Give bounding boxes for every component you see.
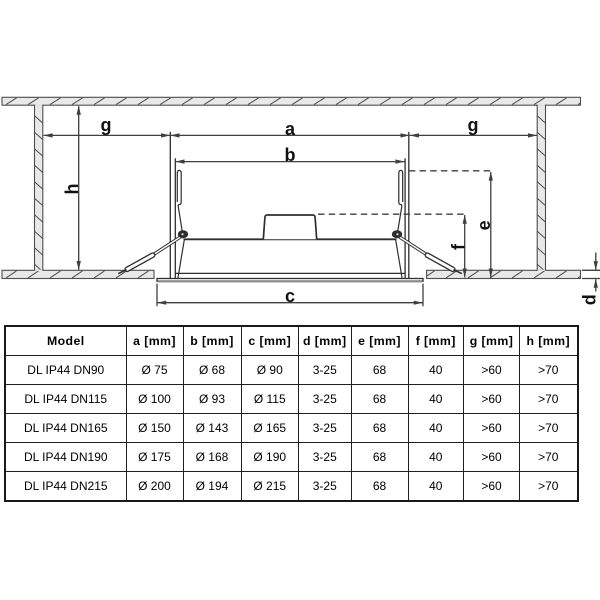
svg-text:b: b xyxy=(285,145,296,165)
svg-text:f: f xyxy=(448,243,468,250)
svg-text:d: d xyxy=(580,294,600,305)
svg-text:a: a xyxy=(285,119,296,139)
svg-text:h: h xyxy=(62,184,82,195)
svg-text:e: e xyxy=(474,220,494,230)
svg-text:g: g xyxy=(468,115,479,135)
svg-text:g: g xyxy=(101,115,112,135)
svg-text:c: c xyxy=(285,286,295,306)
